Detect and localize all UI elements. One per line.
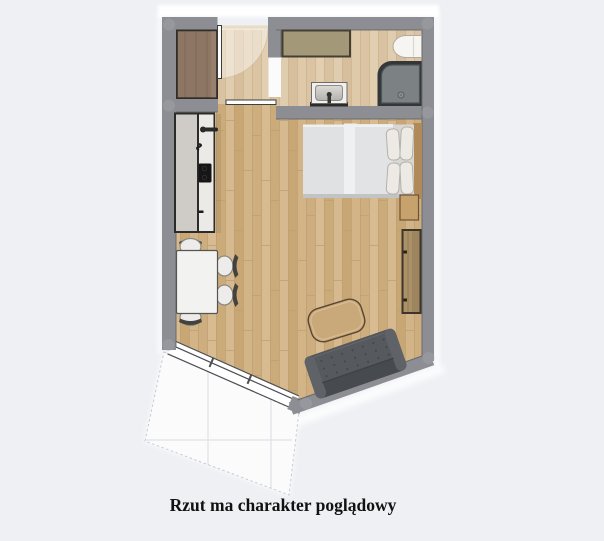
svg-text:Rzut ma charakter poglądowy: Rzut ma charakter poglądowy xyxy=(170,495,397,515)
